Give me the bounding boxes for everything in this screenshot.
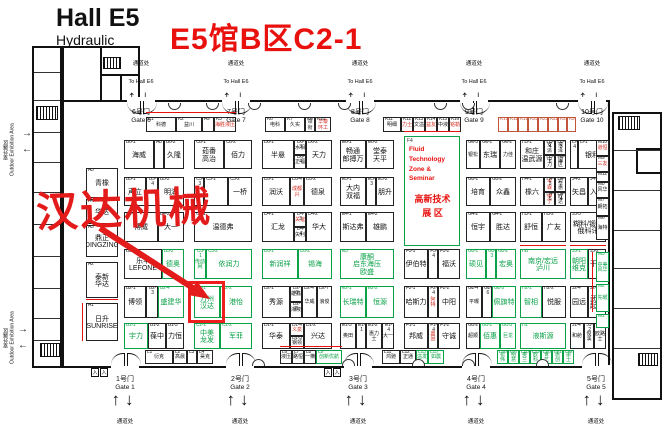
floorplan-canvas: Hall E5 Hydraulic 室外展区 Outdoor Exhibitio… [0,0,664,424]
company-annotation: 汉达机械 [35,173,213,240]
zone-title-annotation: E5馆B区C2-1 [170,14,362,58]
